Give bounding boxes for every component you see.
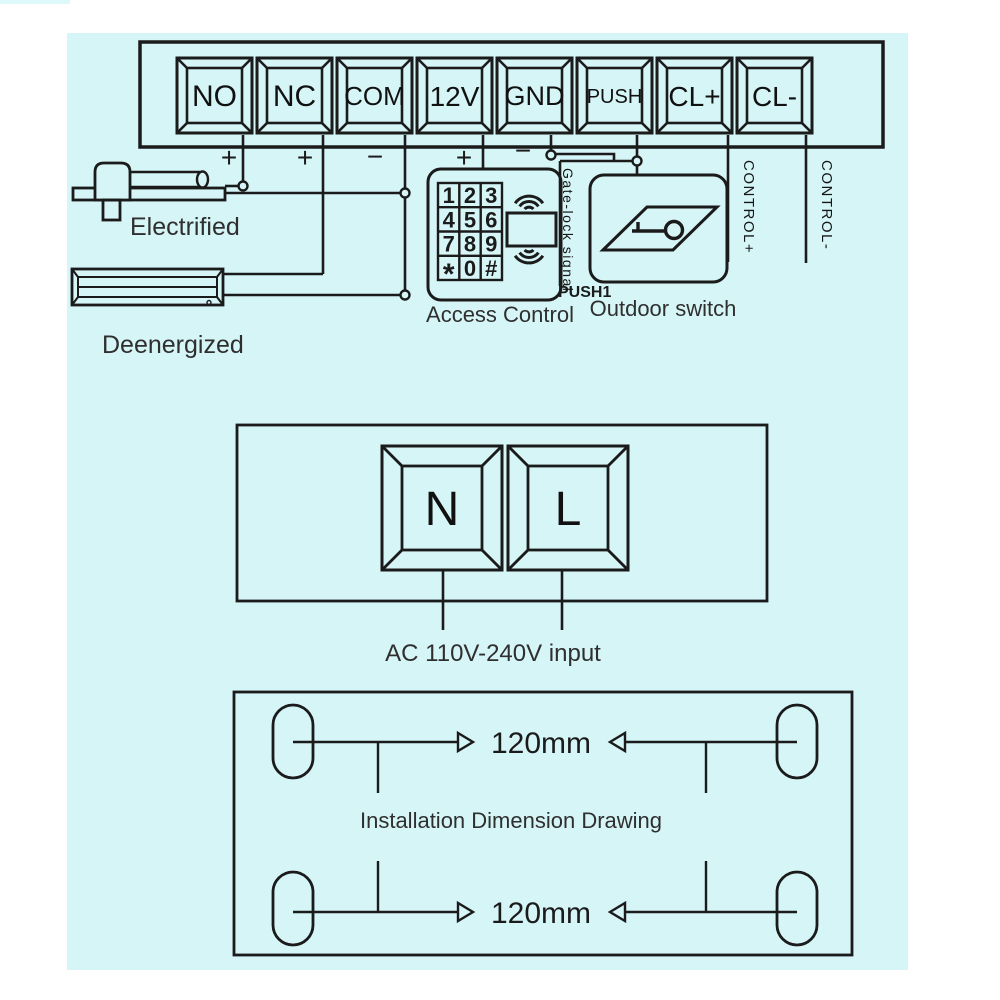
key-8: 8 [464, 232, 476, 257]
terminal-label-n: N [425, 483, 460, 536]
junction-com-upper [401, 189, 410, 198]
terminal-label-nc: NC [273, 80, 316, 113]
junction-push [633, 157, 642, 166]
ac-input-label: AC 110V-240V input [385, 640, 601, 667]
terminal-label-12v: 12V [430, 81, 480, 112]
dimension-bottom-value: 120mm [491, 897, 591, 930]
gate-lock-signal-label: Gate-lock signal [560, 168, 576, 292]
terminal-label-cl-minus: CL- [752, 81, 797, 112]
terminal-label-push: PUSH [587, 86, 643, 108]
lock-body [95, 163, 130, 200]
outdoor-switch-label: Outdoor switch [590, 296, 737, 321]
electrified-label: Electrified [130, 213, 240, 241]
key-star: * [443, 258, 455, 291]
control-plus-label: CONTROL+ [740, 160, 757, 254]
key-2: 2 [464, 183, 476, 208]
junction-com-lower [401, 291, 410, 300]
dimension-drawing-title: Installation Dimension Drawing [360, 808, 662, 833]
edge-artifact [0, 0, 70, 4]
key-6: 6 [485, 207, 497, 232]
wiring-diagram-page: NO NC COM 12V GND PUSH CL+ CL- + + − [0, 0, 1000, 1000]
junction-gnd [547, 151, 556, 160]
key-7: 7 [443, 232, 455, 257]
wiring-diagram: NO NC COM 12V GND PUSH CL+ CL- + + − [0, 0, 1000, 1000]
terminal-label-l: L [555, 483, 582, 536]
terminal-label-no: NO [192, 80, 237, 113]
key-1: 1 [443, 183, 455, 208]
key-5: 5 [464, 207, 476, 232]
terminal-label-com: COM [344, 81, 405, 111]
key-4: 4 [443, 207, 456, 232]
key-9: 9 [485, 232, 497, 257]
sign-no: + [221, 142, 237, 173]
sign-gnd: − [515, 135, 531, 166]
terminal-label-gnd: GND [505, 81, 565, 111]
key-3: 3 [485, 183, 497, 208]
deenergized-label: Deenergized [102, 331, 244, 359]
keypad-keys: 1 2 3 4 5 6 7 8 9 * 0 # [443, 183, 498, 291]
dimension-top-value: 120mm [491, 727, 591, 760]
terminal-label-cl-plus: CL+ [668, 81, 720, 112]
key-hash: # [485, 256, 497, 281]
junction-no [239, 182, 248, 191]
access-control-label: Access Control [426, 302, 574, 327]
sign-nc: + [297, 142, 313, 173]
control-minus-label: CONTROL- [818, 160, 835, 250]
key-0: 0 [464, 256, 476, 281]
sign-com: − [367, 141, 383, 172]
